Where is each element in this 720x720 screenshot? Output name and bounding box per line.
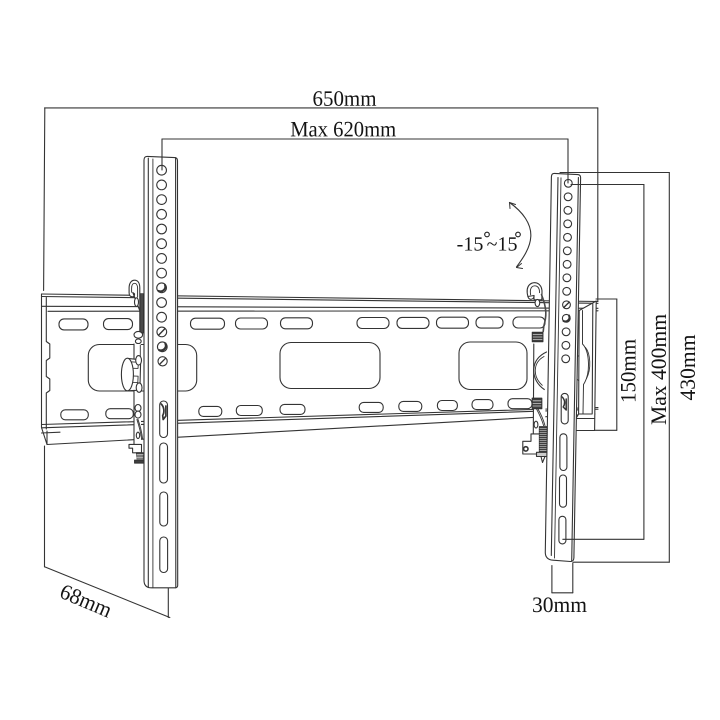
svg-text:30mm: 30mm	[532, 592, 587, 617]
svg-text:430mm: 430mm	[675, 335, 700, 401]
svg-text:650mm: 650mm	[312, 86, 376, 111]
svg-text:15: 15	[497, 233, 517, 255]
svg-text:150mm: 150mm	[616, 339, 641, 403]
svg-text:Max 400mm: Max 400mm	[646, 314, 671, 425]
svg-text:Max 620mm: Max 620mm	[290, 116, 396, 141]
svg-text:-15: -15	[457, 233, 484, 255]
